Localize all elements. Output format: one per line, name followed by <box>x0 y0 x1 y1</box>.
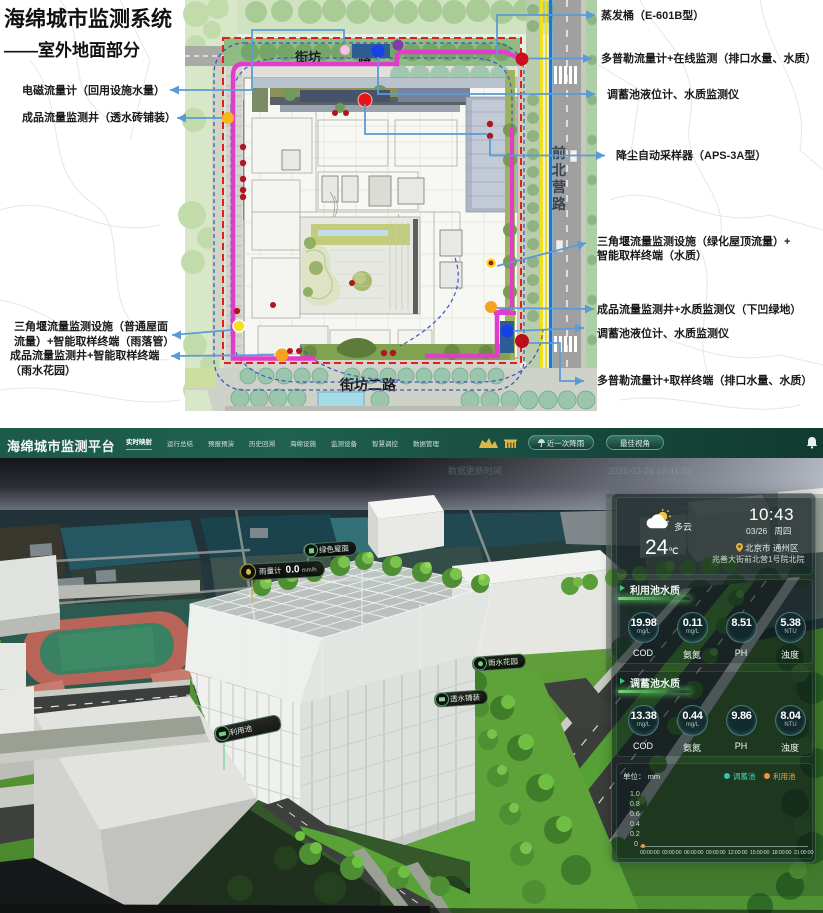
svg-text:北: 北 <box>552 162 566 178</box>
svg-text:前: 前 <box>552 145 566 161</box>
svg-text:路: 路 <box>552 196 567 212</box>
svg-text:数据更新时间: 数据更新时间 <box>448 465 502 476</box>
svg-text:2021-03-26 10:41:52: 2021-03-26 10:41:52 <box>608 466 692 476</box>
svg-text:营: 营 <box>552 179 566 195</box>
